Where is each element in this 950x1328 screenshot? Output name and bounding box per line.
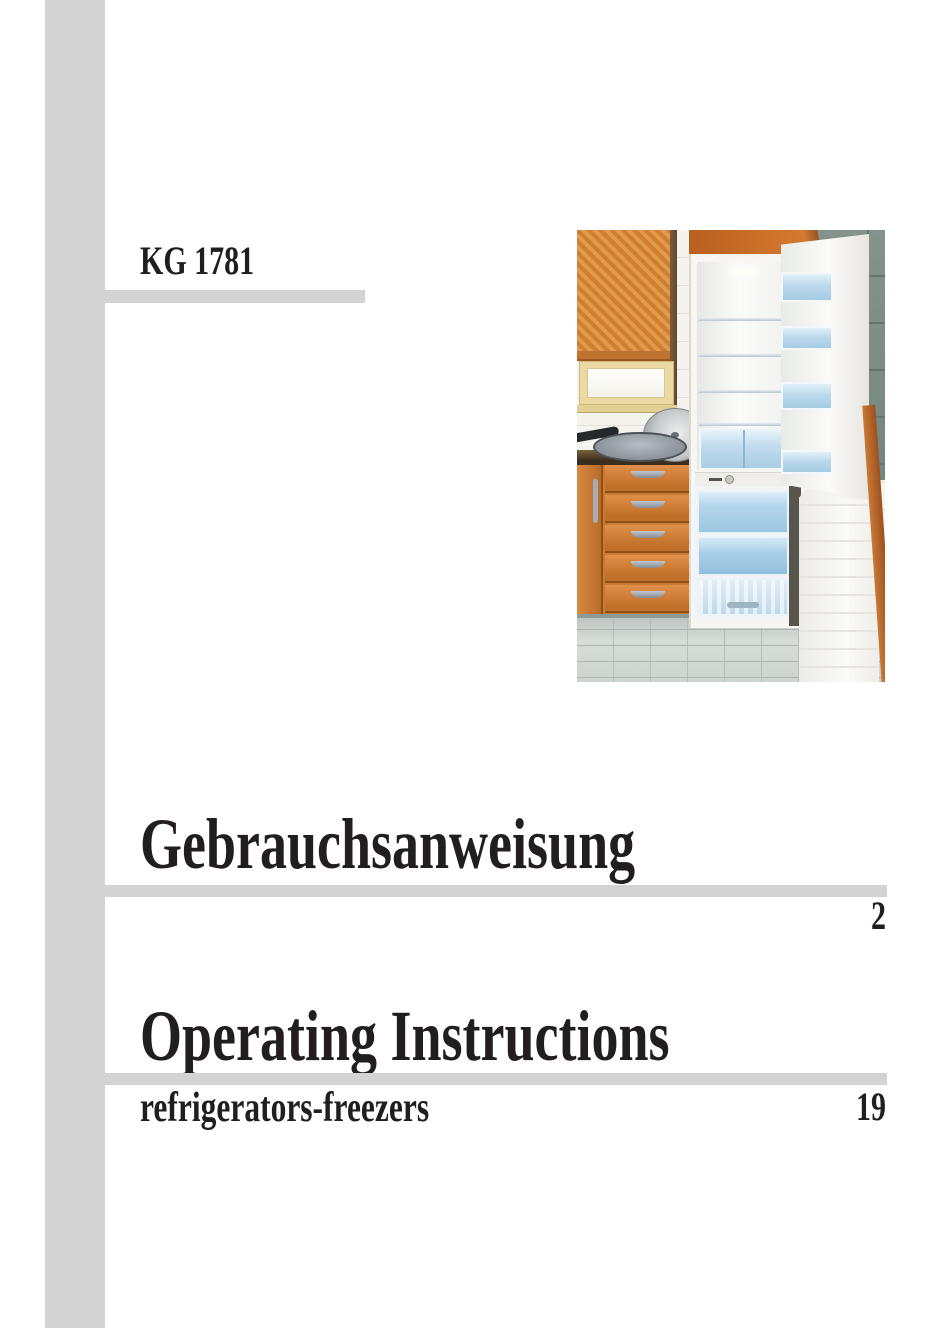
cabinet-door-handle	[593, 479, 598, 523]
english-section-page-number: 19	[856, 1087, 886, 1127]
german-section-page-number: 2	[871, 896, 886, 936]
cabinet-drawer	[605, 585, 691, 613]
english-section-title: Operating Instructions	[140, 1000, 670, 1072]
fridge-shelf	[699, 318, 789, 321]
drawer-handle	[631, 561, 665, 568]
drawer-handle	[631, 501, 665, 508]
fridge-shelf	[699, 354, 789, 357]
window-blind-bottom-rail	[577, 351, 670, 361]
drawer-handle	[631, 591, 665, 598]
drawer-cabinet	[577, 465, 691, 614]
fridge-shelf	[699, 390, 789, 393]
kitchen-photo	[577, 230, 885, 682]
english-section-bar	[105, 1073, 887, 1085]
thermostat-dial	[725, 475, 734, 484]
freezer-basket-handle	[727, 602, 759, 608]
drawer-handle	[631, 531, 665, 538]
freezer-drawer	[697, 490, 789, 534]
model-underline-bar	[105, 290, 365, 303]
fridge-shelf	[699, 423, 789, 426]
cabinet-drawer	[605, 495, 691, 523]
cabinet-drawer	[605, 555, 691, 583]
model-number-title: KG 1781	[140, 241, 254, 281]
control-label	[709, 478, 722, 481]
fridge-door-open	[781, 234, 869, 500]
cabinet-drawer	[605, 465, 691, 493]
cabinet-door	[577, 465, 603, 614]
door-bin	[781, 272, 833, 302]
left-accent-bar	[45, 0, 105, 1328]
crisper-divider	[743, 430, 745, 468]
cabinet-drawer	[605, 525, 691, 553]
window-pane	[587, 368, 665, 398]
door-bin	[781, 450, 833, 474]
freezer-basket	[697, 578, 789, 616]
door-bin	[781, 326, 833, 350]
door-bin	[781, 382, 833, 410]
frying-pan	[593, 432, 687, 462]
german-section-title: Gebrauchsanweisung	[140, 808, 635, 880]
drawer-handle	[631, 471, 665, 478]
freezer-door-open	[799, 488, 879, 682]
german-section-bar	[105, 885, 887, 897]
freezer-drawer	[697, 536, 789, 576]
fridge-lamp	[729, 268, 757, 276]
window-blind	[577, 230, 670, 351]
english-section-subtitle: refrigerators-freezers	[140, 1087, 429, 1129]
